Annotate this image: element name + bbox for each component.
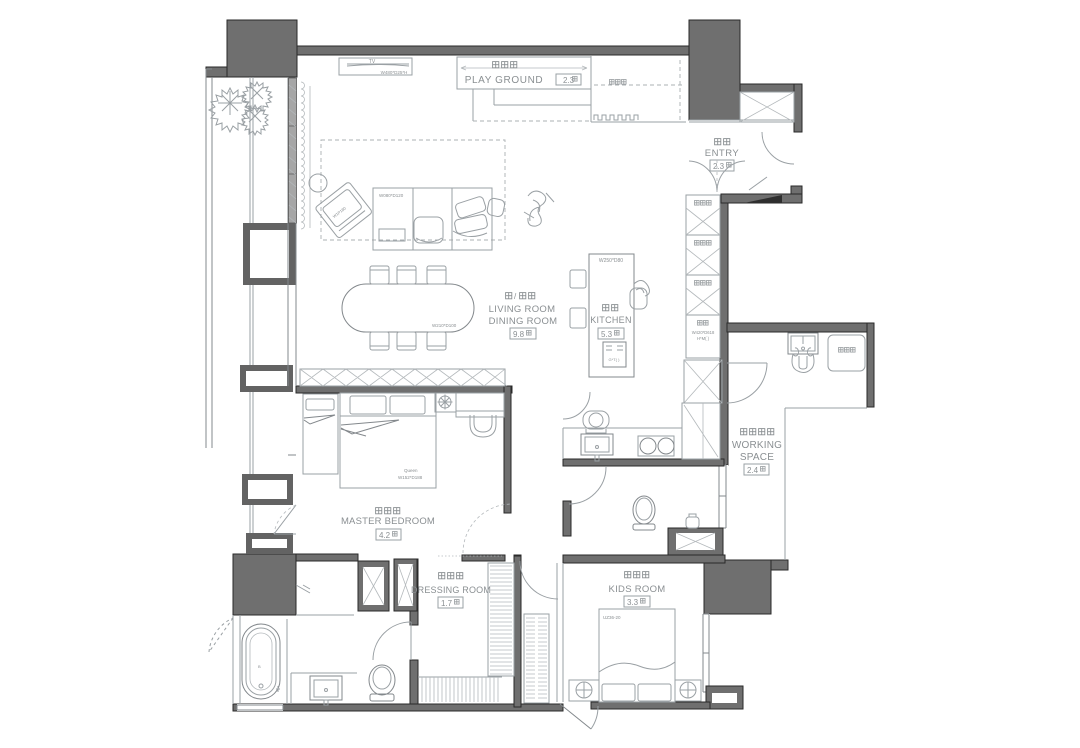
- svg-text:SPACE: SPACE: [740, 452, 774, 463]
- svg-text:W250*D80: W250*D80: [599, 258, 623, 264]
- svg-text:9.8: 9.8: [513, 330, 525, 339]
- svg-text:WORKING: WORKING: [732, 440, 782, 451]
- svg-text:W210*D100: W210*D100: [432, 323, 457, 328]
- svg-text:B: B: [258, 664, 261, 669]
- svg-text:W152*D188: W152*D188: [398, 475, 423, 480]
- svg-text:DRESSING ROOM: DRESSING ROOM: [411, 585, 491, 595]
- svg-text:PLAY GROUND: PLAY GROUND: [465, 75, 543, 86]
- svg-text:4.2: 4.2: [379, 531, 391, 540]
- svg-text:MASTER BEDROOM: MASTER BEDROOM: [341, 516, 435, 527]
- svg-text:2.3: 2.3: [713, 162, 725, 171]
- svg-text:1.7: 1.7: [441, 599, 453, 608]
- svg-text:2.3: 2.3: [563, 76, 575, 85]
- svg-text:ENTRY: ENTRY: [705, 148, 740, 159]
- svg-text:UZ36-20: UZ36-20: [603, 615, 621, 620]
- svg-text:W420*D618: W420*D618: [692, 330, 715, 335]
- svg-text:W080*D120: W080*D120: [379, 193, 404, 198]
- svg-text:LIVING ROOM: LIVING ROOM: [489, 304, 556, 315]
- svg-text:KIDS ROOM: KIDS ROOM: [608, 584, 665, 595]
- svg-text:5.3: 5.3: [601, 330, 613, 339]
- svg-text:H*M( ): H*M( ): [697, 336, 710, 341]
- svg-text:Queen: Queen: [404, 468, 418, 473]
- svg-text:3.3: 3.3: [627, 598, 639, 607]
- svg-text:KITCHEN: KITCHEN: [590, 315, 632, 325]
- svg-text:DINING ROOM: DINING ROOM: [489, 316, 558, 327]
- svg-text:TV: TV: [369, 59, 376, 65]
- svg-text:W480*D25*H: W480*D25*H: [381, 70, 408, 75]
- svg-text:G*T( ): G*T( ): [609, 357, 621, 362]
- svg-text:2.4: 2.4: [747, 466, 759, 475]
